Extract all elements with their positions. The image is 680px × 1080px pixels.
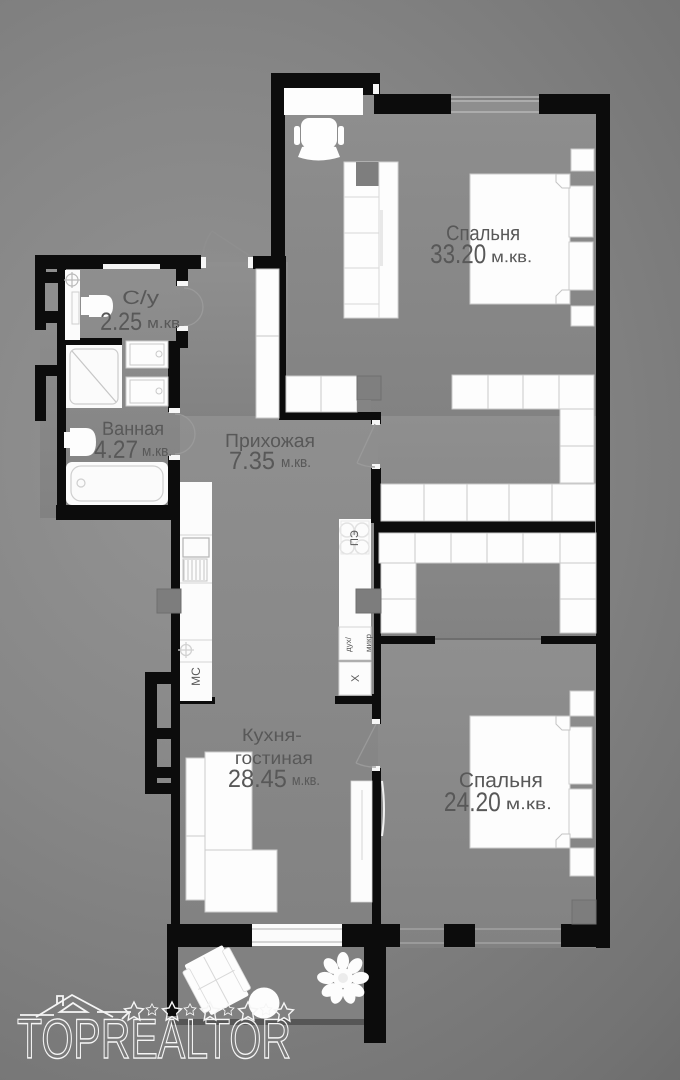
svg-text:микр: микр bbox=[364, 634, 373, 652]
svg-text:Х: Х bbox=[350, 674, 362, 682]
svg-text:м.кв.: м.кв. bbox=[491, 249, 532, 266]
svg-text:дух/: дух/ bbox=[344, 636, 353, 652]
svg-text:ПЭ: ПЭ bbox=[349, 530, 361, 546]
svg-text:С/у: С/у bbox=[122, 288, 160, 309]
svg-text:м.кв.: м.кв. bbox=[142, 443, 172, 460]
svg-text:28.45: 28.45 bbox=[228, 765, 287, 793]
svg-text:2.25: 2.25 bbox=[100, 308, 142, 336]
svg-text:24.20: 24.20 bbox=[444, 787, 501, 817]
svg-text:м.кв: м.кв bbox=[147, 315, 180, 332]
svg-text:7.35: 7.35 bbox=[229, 447, 275, 475]
svg-text:м.кв.: м.кв. bbox=[292, 772, 320, 789]
svg-text:TOPREALTOR: TOPREALTOR bbox=[17, 1007, 291, 1070]
svg-text:33.20: 33.20 bbox=[430, 239, 486, 269]
svg-text:МС: МС bbox=[189, 667, 203, 686]
svg-text:Кухня-: Кухня- bbox=[242, 725, 302, 745]
svg-text:4.27: 4.27 bbox=[94, 436, 138, 464]
svg-text:м.кв.: м.кв. bbox=[506, 796, 552, 813]
svg-text:м.кв.: м.кв. bbox=[281, 454, 311, 471]
